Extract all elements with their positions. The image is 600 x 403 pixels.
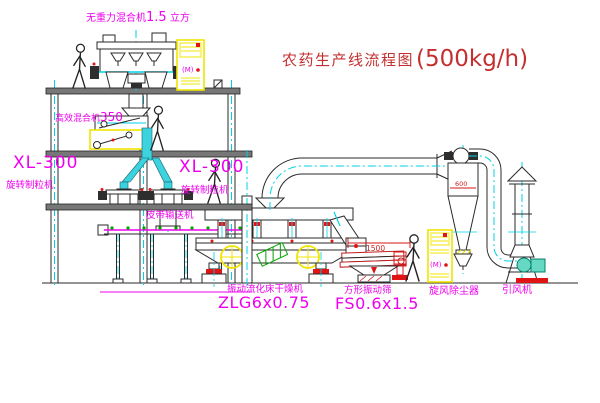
drawing-title-text: 农药生产线流程图 <box>282 49 414 72</box>
floor-beam-top <box>46 88 240 94</box>
label-granulator-left-model: XL-300 <box>13 155 78 172</box>
label-screen-model: FS0.6x1.5 <box>335 296 419 312</box>
label-dryer-model: ZLG6x0.75 <box>218 295 310 311</box>
worker-figure-2 <box>151 106 163 150</box>
label-cyclone: 旋风除尘器 <box>429 287 479 297</box>
label-fan: 引风机 <box>502 286 532 296</box>
rotary-granulator-left <box>98 182 146 204</box>
label-belt-conveyor: 皮带输送机 <box>146 211 194 221</box>
ground-line <box>42 283 578 292</box>
label-gravity-free-mixer: 无重力混合机1.5 立方 <box>86 11 190 24</box>
cabinet-mark-screen: (M) <box>430 261 442 269</box>
worker-figure-1 <box>73 44 85 88</box>
fluid-bed-dryer <box>196 208 366 287</box>
control-cabinet-top: (M) <box>177 40 204 90</box>
exhaust-duct <box>256 151 452 210</box>
mixer-discharge-chute <box>142 128 152 160</box>
drawing-title-capacity: (500kg/h) <box>416 46 528 72</box>
label-high-efficiency-mixer: 高效混合机350 <box>55 111 123 124</box>
cabinet-mark-top: (M) <box>182 66 194 74</box>
drawing-title: 农药生产线流程图 (500kg/h) <box>282 46 528 72</box>
label-granulator-right-name: 旋转制粒机 <box>181 186 229 196</box>
induced-draft-fan <box>516 258 548 283</box>
control-cabinet-screen: (M) <box>428 230 452 282</box>
label-granulator-right-model: XL-300 <box>179 159 244 176</box>
cyclone-diameter-dim: 600 <box>455 180 467 188</box>
worker-figure-4 <box>406 235 419 281</box>
floor-box-small <box>214 80 222 88</box>
vibration-motor-symbol-left <box>221 246 243 268</box>
label-granulator-left-name: 旋转制粒机 <box>6 181 54 191</box>
cad-drawing-canvas: (M) <box>0 0 600 403</box>
